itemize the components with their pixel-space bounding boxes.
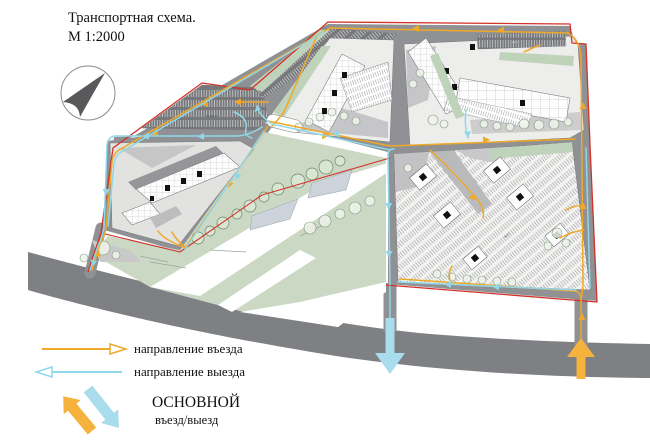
block-parking-southeast: мест	[388, 138, 598, 296]
legend-exit-row: направление выезда	[36, 364, 245, 379]
drawing-title: Транспортная схема. М 1:2000	[68, 10, 196, 45]
entry-arrow-icon	[110, 344, 126, 354]
parking-field-northwest: 61 место	[140, 85, 270, 130]
legend-entry-label: направление въезда	[134, 341, 243, 356]
site-plan-canvas: 61 место мест	[0, 0, 650, 441]
big-entry-arrow-icon	[63, 396, 96, 434]
transport-scheme-page: 61 место мест	[0, 0, 650, 441]
legend-main-title: ОСНОВНОЙ	[152, 394, 240, 411]
title-line-1: Транспортная схема.	[68, 10, 196, 26]
parking-count-label: 61 место	[206, 114, 218, 118]
legend: направление въезда направление выезда ОС…	[36, 341, 245, 435]
north-arrow-icon	[61, 66, 115, 120]
legend-main-gate: ОСНОВНОЙ въезд/выезд	[63, 386, 240, 435]
legend-main-subtitle: въезд/выезд	[155, 413, 219, 427]
exit-arrow-icon	[36, 367, 52, 377]
parking-count-label: мест	[512, 40, 519, 44]
legend-entry-row: направление въезда	[42, 341, 243, 356]
legend-exit-label: направление выезда	[134, 364, 245, 379]
title-scale: М 1:2000	[68, 29, 125, 45]
